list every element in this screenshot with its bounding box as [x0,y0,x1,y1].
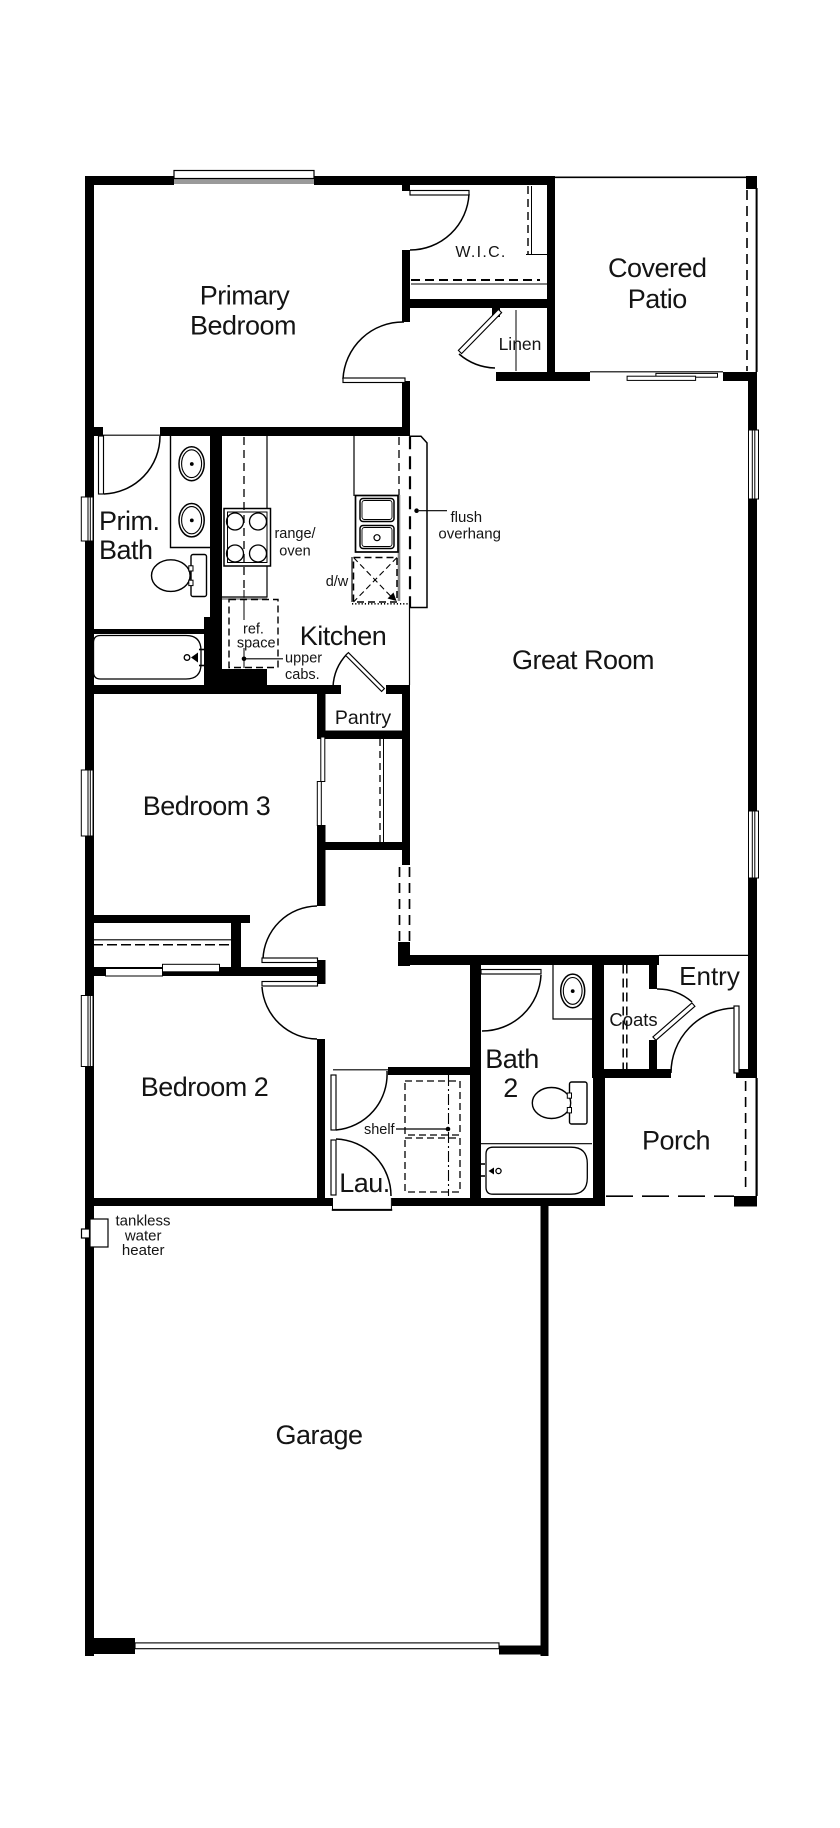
svg-text:Patio: Patio [628,284,687,314]
svg-text:2: 2 [503,1073,518,1103]
svg-text:Great Room: Great Room [512,645,654,675]
svg-text:oven: oven [279,544,310,560]
svg-text:Porch: Porch [642,1126,710,1156]
svg-text:range/: range/ [274,526,316,542]
svg-text:Primary: Primary [200,281,290,311]
svg-text:Bedroom 2: Bedroom 2 [141,1072,269,1102]
svg-text:space: space [237,636,276,652]
svg-text:Lau.: Lau. [339,1168,390,1198]
svg-text:Coats: Coats [609,1009,657,1030]
svg-text:Prim.: Prim. [99,506,160,536]
svg-text:Kitchen: Kitchen [300,621,387,651]
svg-text:flush: flush [450,509,482,526]
svg-text:shelf: shelf [364,1122,396,1138]
svg-text:d/w: d/w [326,574,349,590]
svg-text:Entry: Entry [679,961,740,991]
svg-text:Bedroom 3: Bedroom 3 [143,791,271,821]
svg-text:overhang: overhang [438,526,501,543]
svg-text:Bedroom: Bedroom [190,311,296,341]
svg-text:cabs.: cabs. [285,667,320,683]
svg-text:upper: upper [285,651,322,667]
svg-text:Linen: Linen [499,334,542,354]
svg-text:Covered: Covered [608,253,707,283]
svg-text:heater: heater [122,1242,165,1259]
svg-text:W.I.C.: W.I.C. [455,244,506,261]
svg-text:Bath: Bath [99,535,153,565]
svg-text:Pantry: Pantry [335,707,392,729]
svg-text:Garage: Garage [275,1420,362,1450]
svg-text:Bath: Bath [485,1044,539,1074]
